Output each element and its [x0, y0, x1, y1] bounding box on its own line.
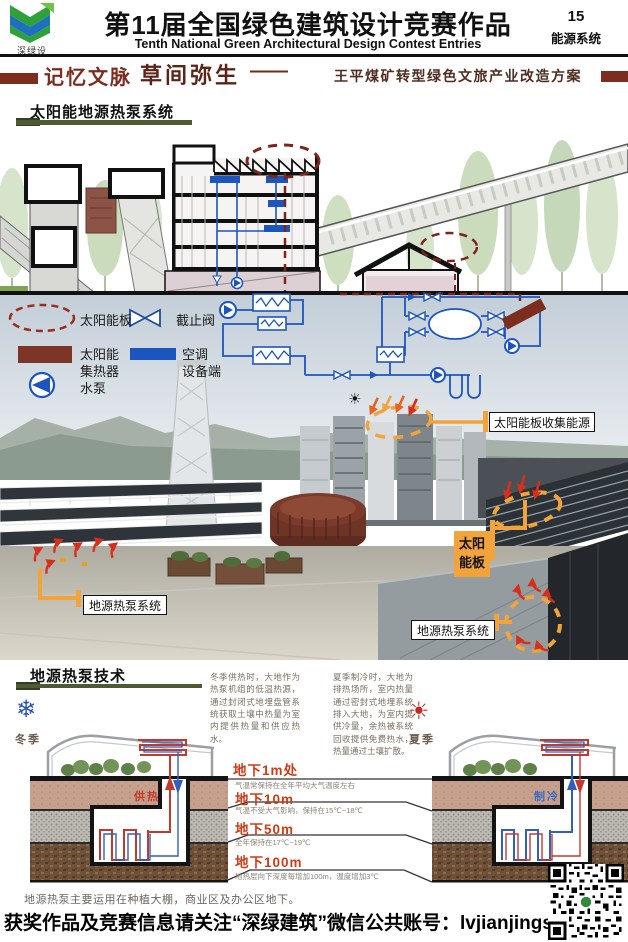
legend-pump-label: 水泵 [80, 378, 106, 397]
plants [61, 759, 151, 776]
banner-bar-right [601, 71, 628, 82]
logo-caption: 深绿设 [4, 44, 60, 57]
depth-4-title: 地下100m [235, 851, 303, 871]
legend-stop-valve-label: 截止阀 [176, 310, 215, 329]
panel-callout-line1: 太阳 [454, 535, 490, 554]
legend-solar-panel-label: 太阳能板 [80, 310, 132, 329]
winter-label: 冬季 [10, 731, 46, 747]
round-pavilion [270, 493, 366, 553]
depth-4-desc: 地热层向下深度每增加100m，温度增加3℃ [235, 871, 379, 882]
solar-field [0, 482, 262, 549]
entry-number: 15 [528, 8, 624, 25]
footer-text: 获奖作品及竞赛信息请关注“深绿建筑”微信公共账号：lvjianjingsai [4, 908, 569, 935]
heating-label: 供热 [134, 788, 160, 804]
winter-diagram [30, 736, 228, 883]
ghp-right-callout-label: 地源热泵系统 [411, 620, 495, 640]
depth-1-title: 地下1m处 [233, 759, 298, 779]
ghp-diagrams [0, 658, 628, 895]
banner-dash: —— [250, 60, 286, 83]
summer-diagram [432, 736, 628, 883]
depth-3-desc: 全年保持在17℃~19℃ [235, 837, 310, 848]
legend-ac-label-2: 设备端 [182, 361, 221, 380]
cooling-label: 制冷 [534, 788, 560, 804]
plants [463, 759, 537, 776]
sun-icon: ☀ [348, 390, 361, 408]
section1-title: 太阳能地源热泵系统 [30, 101, 174, 122]
collect-callout-label: 太阳能板收集能源 [489, 412, 595, 432]
ground-line [0, 291, 628, 296]
contest-title-en: Tenth National Green Architectural Desig… [88, 37, 528, 51]
ghp-left-callout-label: 地源热泵系统 [83, 595, 167, 615]
logo-icon [6, 3, 56, 43]
snowflake-icon: ❄ [16, 698, 36, 722]
panel-callout-label: 太阳 能板 [454, 531, 490, 577]
application-note: 地源热泵主要运用在种植大棚，商业区及办公区地下。 [24, 891, 300, 907]
winter-paragraph: 冬季供热时，大地作为热泵机组的低温热源，通过封闭式地埋盘管系统获取土壤中热量为室… [210, 671, 300, 745]
legend-ac-icon [130, 348, 176, 360]
banner-subtitle: 王平煤矿转型绿色文旅产业改造方案 [334, 66, 582, 86]
banner-tag: 记忆文脉 [44, 61, 132, 90]
banner-bar-left [0, 73, 38, 84]
summer-paragraph: 夏季制冷时，大地为排热场所，室内热量通过密封式地埋系统排入大地，为室内提供冷量，… [333, 671, 413, 757]
entry-category: 能源系统 [528, 28, 624, 47]
poster: 深绿设 第11届全国绿色建筑设计竞赛作品 Tenth National Gree… [0, 0, 628, 942]
legend-collector-icon [18, 346, 72, 363]
qr-logo-leaf [581, 897, 591, 907]
main-building [165, 145, 320, 293]
grass-strip [0, 286, 28, 291]
banner-title: 草间弥生 [140, 58, 240, 90]
depth-2-desc: 气温不受大气影响，保持在15℃~18℃ [235, 805, 363, 816]
depth-3-title: 地下50m [235, 818, 294, 838]
qr-code [547, 864, 625, 940]
section1-underline [16, 120, 192, 125]
tank [429, 309, 481, 339]
panel-callout-line2: 能板 [454, 554, 490, 573]
